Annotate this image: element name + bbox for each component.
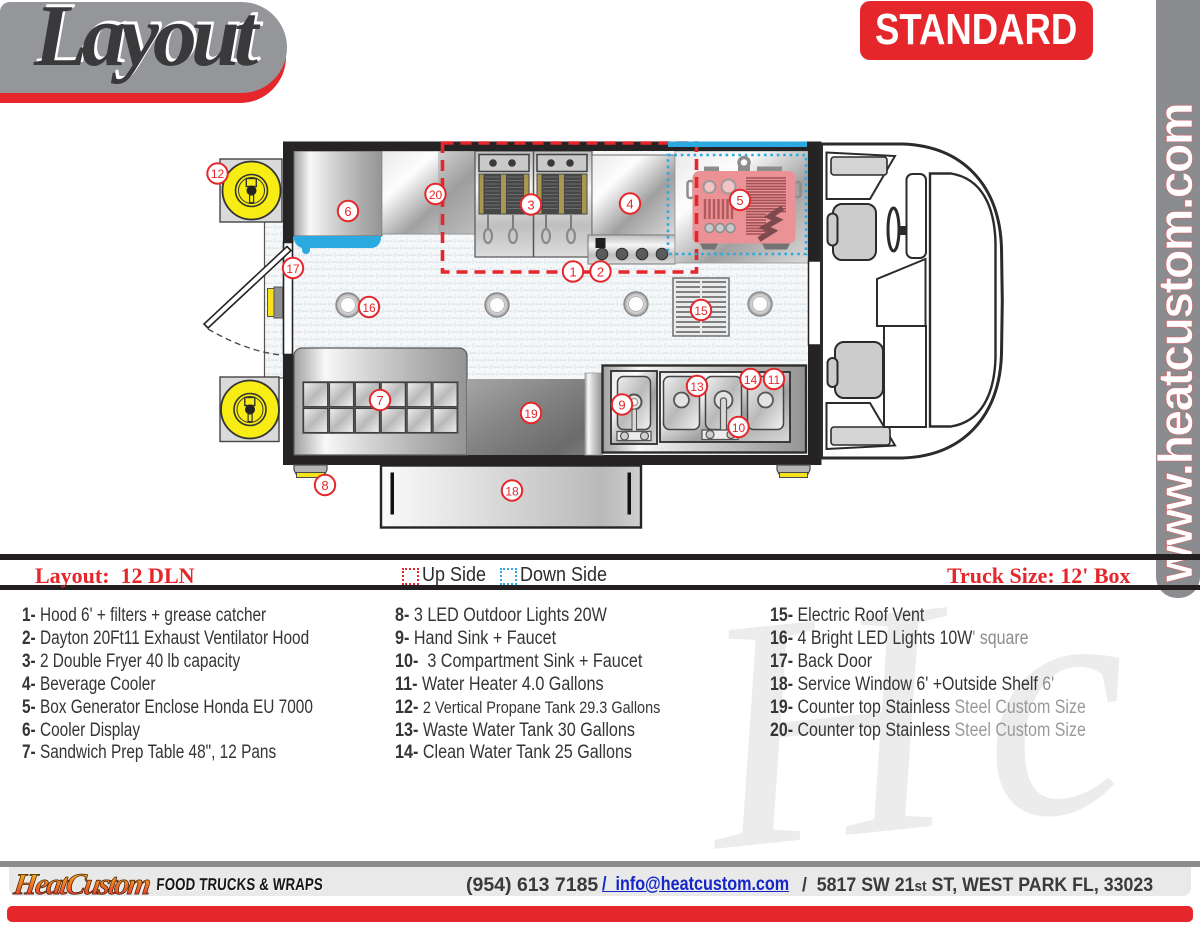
svg-text:11: 11 <box>768 373 781 387</box>
svg-text:4: 4 <box>626 197 633 212</box>
svg-text:1: 1 <box>569 265 576 280</box>
svg-text:7: 7 <box>376 393 383 408</box>
svg-text:18: 18 <box>505 485 519 499</box>
svg-text:12: 12 <box>211 167 225 181</box>
svg-text:16: 16 <box>362 301 376 315</box>
svg-text:15: 15 <box>694 304 708 318</box>
svg-text:17: 17 <box>286 262 300 276</box>
svg-text:5: 5 <box>736 193 743 208</box>
svg-text:13: 13 <box>690 380 704 394</box>
svg-text:8: 8 <box>321 478 328 493</box>
svg-text:20: 20 <box>429 188 443 202</box>
svg-text:2: 2 <box>597 265 604 280</box>
svg-text:9: 9 <box>618 398 625 413</box>
svg-text:10: 10 <box>732 421 746 435</box>
svg-text:6: 6 <box>344 204 351 219</box>
svg-text:14: 14 <box>744 373 758 387</box>
svg-text:3: 3 <box>527 198 534 213</box>
svg-text:19: 19 <box>524 407 538 421</box>
